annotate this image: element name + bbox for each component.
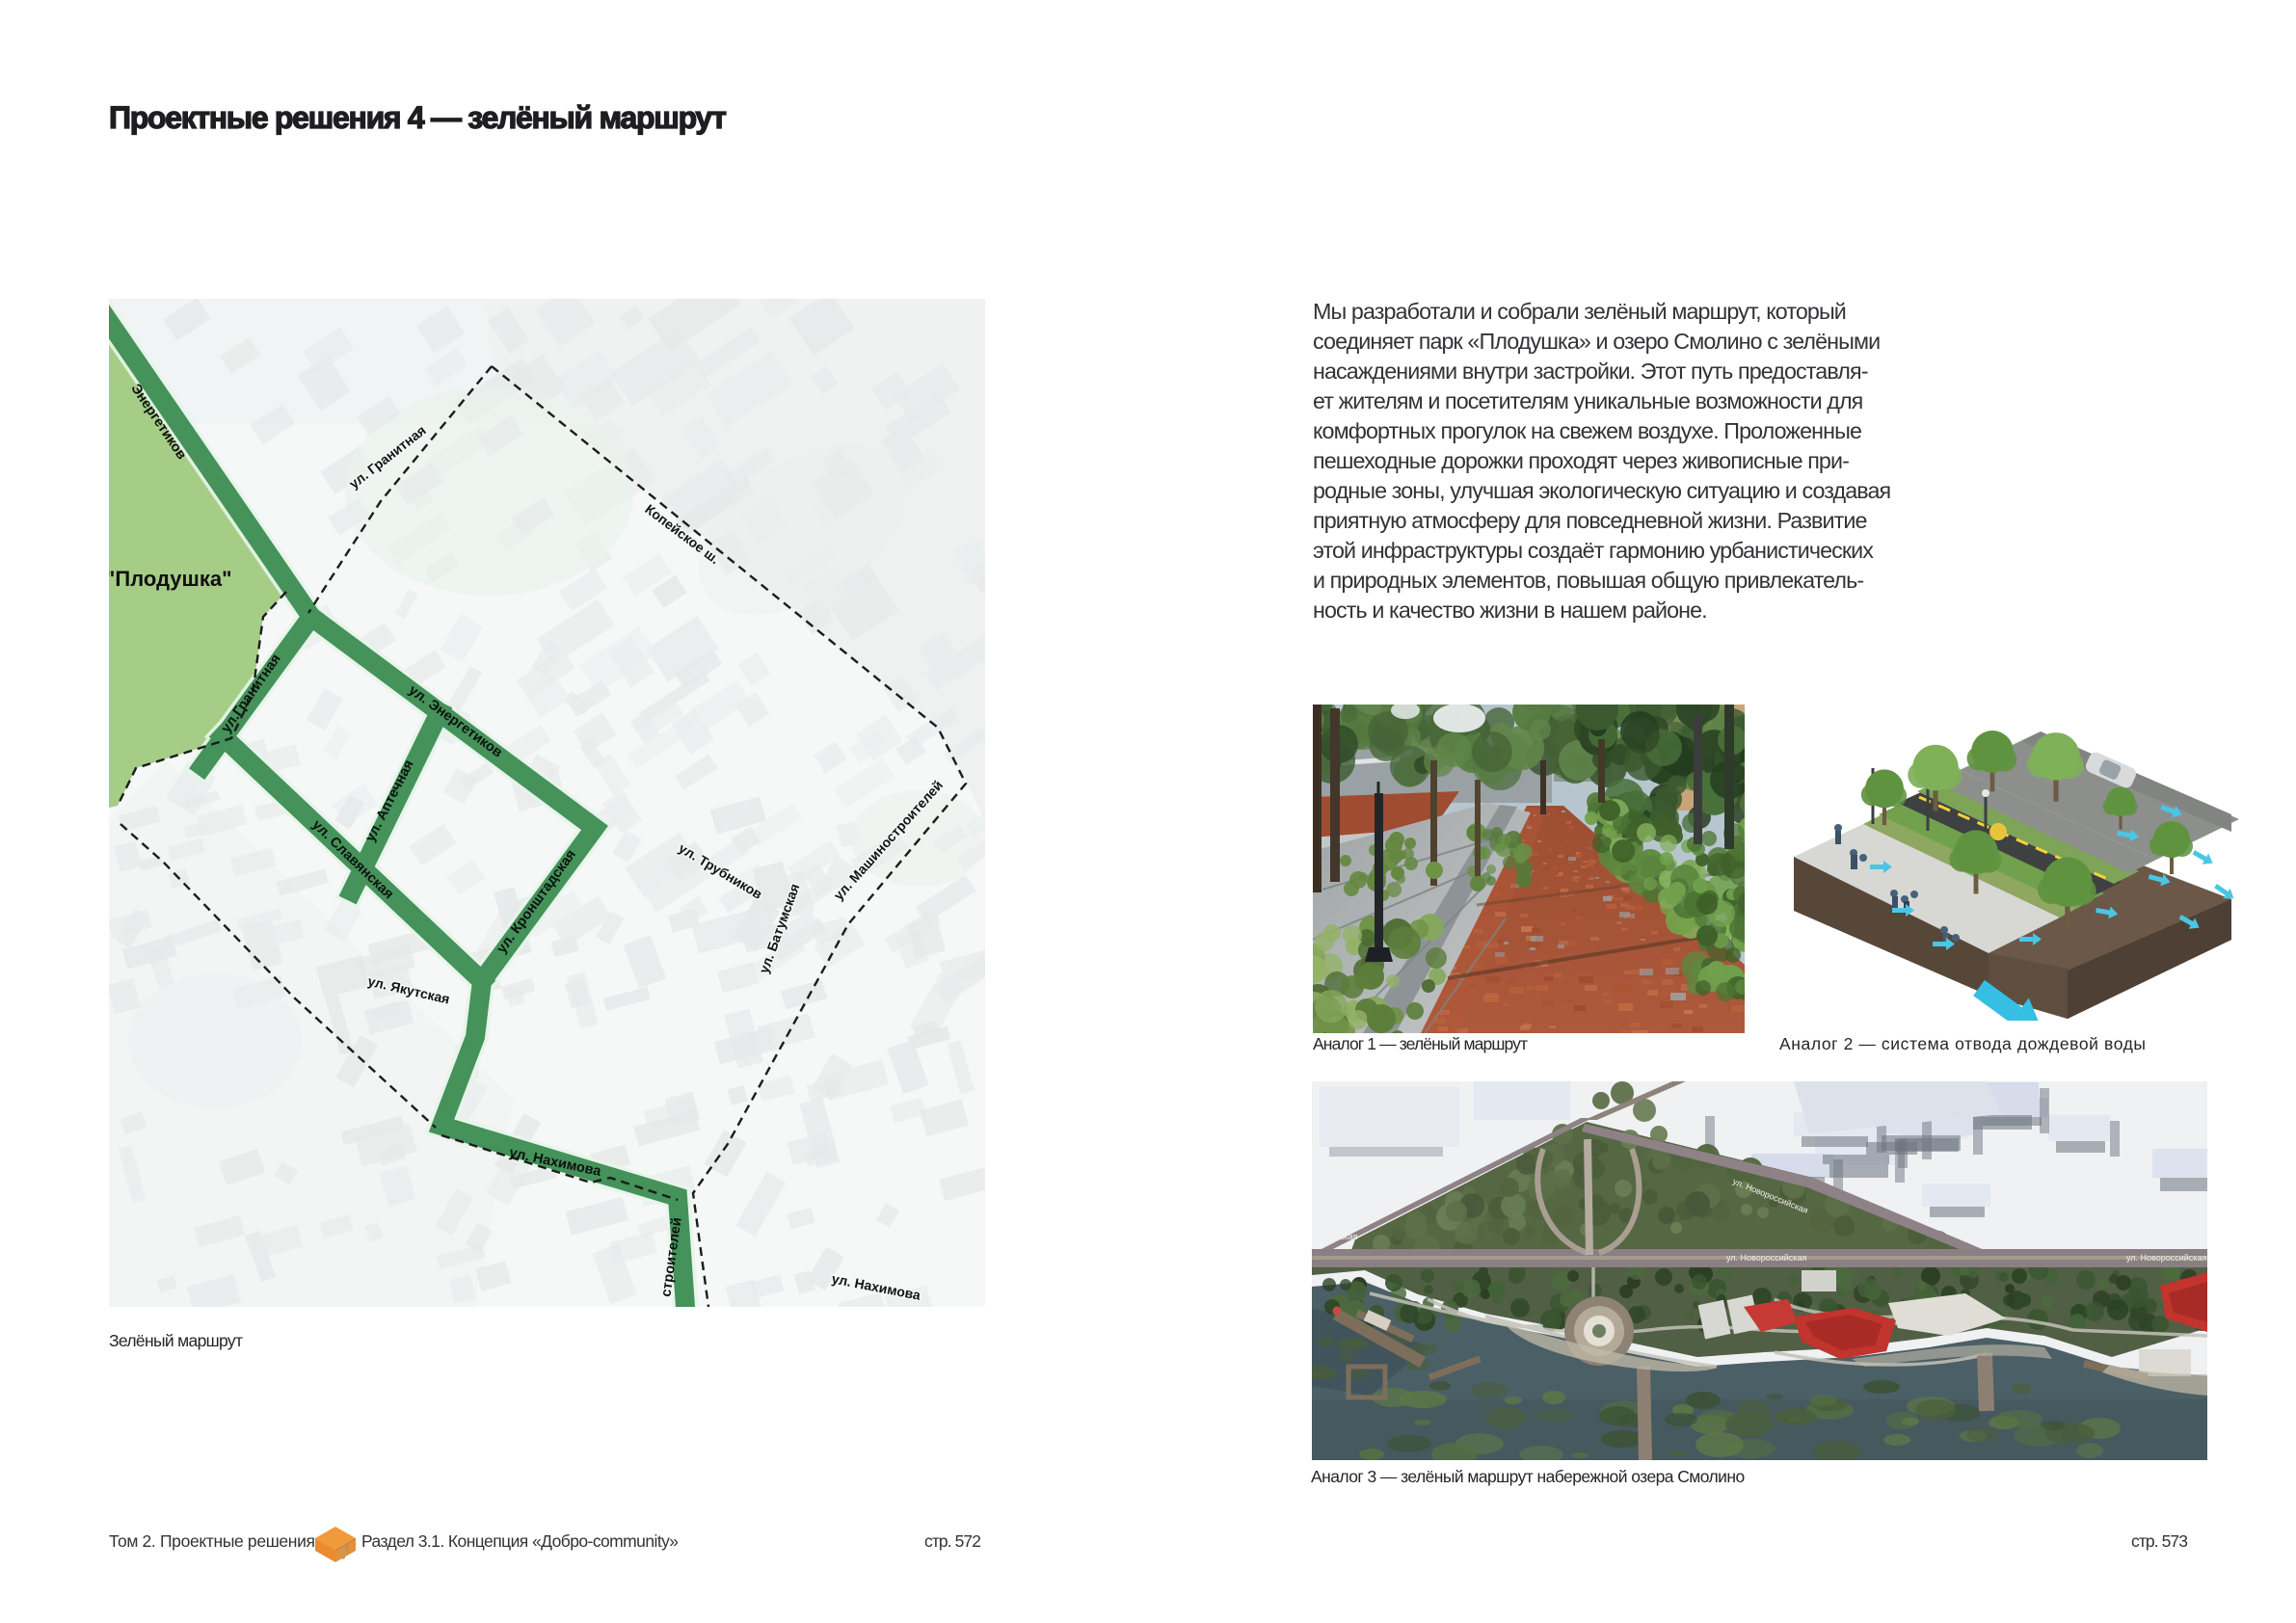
svg-text:российская: российская [1312,1232,1358,1241]
svg-text:ул. Новороссийская: ул. Новороссийская [2126,1253,2206,1263]
svg-text:"Плодушка": "Плодушка" [109,567,232,591]
svg-text:ул. Новороссийская: ул. Новороссийская [1726,1253,1806,1263]
